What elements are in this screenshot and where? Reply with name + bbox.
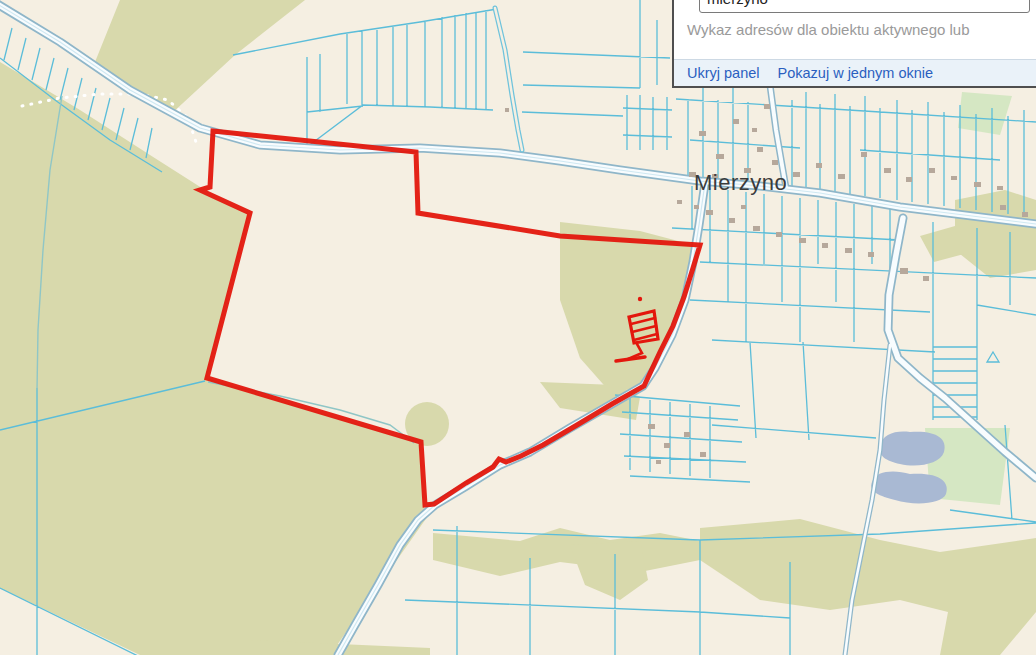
geoportal-map-view: Mierzyno Wykaz adresów dla obiektu aktyw… (0, 0, 1036, 655)
search-input[interactable] (699, 0, 1030, 13)
panel-helper-text: Wykaz adresów dla obiektu aktywnego lub (687, 21, 1036, 38)
hide-panel-link[interactable]: Ukryj panel (687, 65, 760, 81)
place-label: Mierzyno (694, 170, 787, 196)
map-canvas[interactable] (0, 0, 1036, 655)
address-panel: Wykaz adresów dla obiektu aktywnego lub … (672, 0, 1036, 88)
panel-link-bar: Ukryj panel Pokazuj w jednym oknie (674, 59, 1036, 86)
single-window-link[interactable]: Pokazuj w jednym oknie (778, 65, 934, 81)
